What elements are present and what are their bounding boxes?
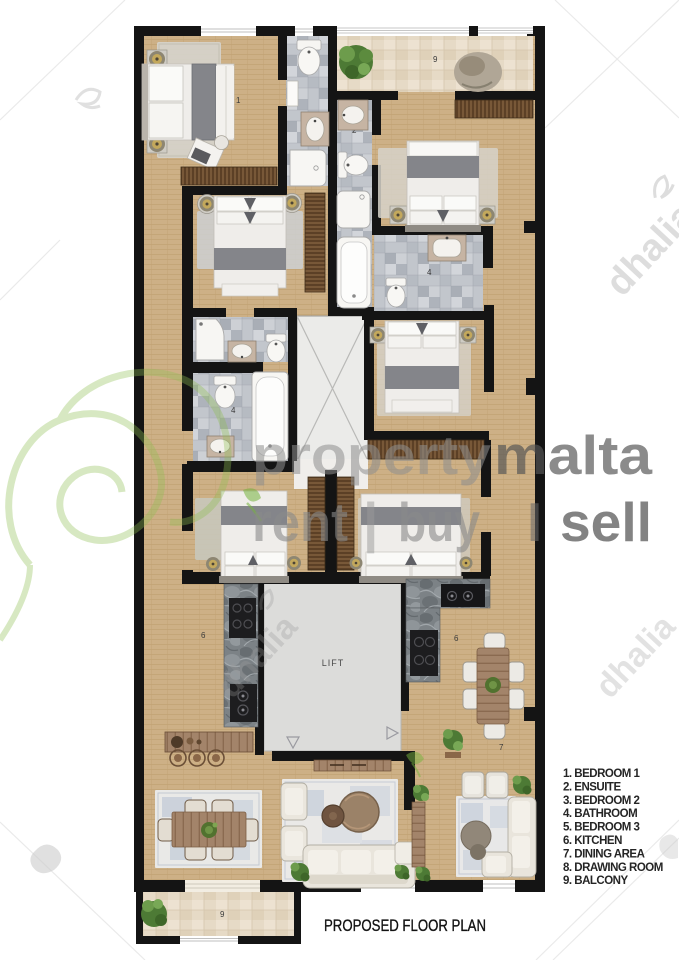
svg-text:4. BATHROOM: 4. BATHROOM (563, 808, 637, 820)
svg-text:|: | (363, 491, 378, 554)
svg-text:4: 4 (231, 406, 236, 415)
svg-text:LIFT: LIFT (322, 658, 345, 668)
svg-text:7. DINING AREA: 7. DINING AREA (563, 848, 645, 860)
svg-text:8. DRAWING ROOM: 8. DRAWING ROOM (563, 862, 663, 874)
svg-text:PROPOSED FLOOR PLAN: PROPOSED FLOOR PLAN (324, 916, 486, 935)
svg-text:rent: rent (252, 491, 348, 553)
svg-text:9: 9 (220, 910, 225, 919)
svg-text:7: 7 (499, 743, 504, 752)
svg-text:1: 1 (236, 96, 241, 105)
svg-text:1. BEDROOM 1: 1. BEDROOM 1 (563, 768, 641, 780)
svg-text:I: I (527, 491, 542, 553)
svg-text:3. BEDROOM 2: 3. BEDROOM 2 (563, 795, 640, 807)
svg-text:sell: sell (560, 491, 652, 553)
svg-text:6. KITCHEN: 6. KITCHEN (563, 835, 622, 847)
svg-text:malta: malta (494, 424, 652, 486)
svg-text:5. BEDROOM 3: 5. BEDROOM 3 (563, 822, 640, 834)
svg-text:buy: buy (398, 491, 480, 553)
svg-text:2. ENSUITE: 2. ENSUITE (563, 781, 621, 793)
svg-text:6: 6 (454, 634, 459, 643)
svg-text:6: 6 (201, 631, 206, 640)
svg-text:property: property (252, 424, 491, 486)
svg-text:4: 4 (427, 268, 432, 277)
svg-text:9: 9 (433, 55, 438, 64)
svg-text:9. BALCONY: 9. BALCONY (563, 875, 628, 887)
